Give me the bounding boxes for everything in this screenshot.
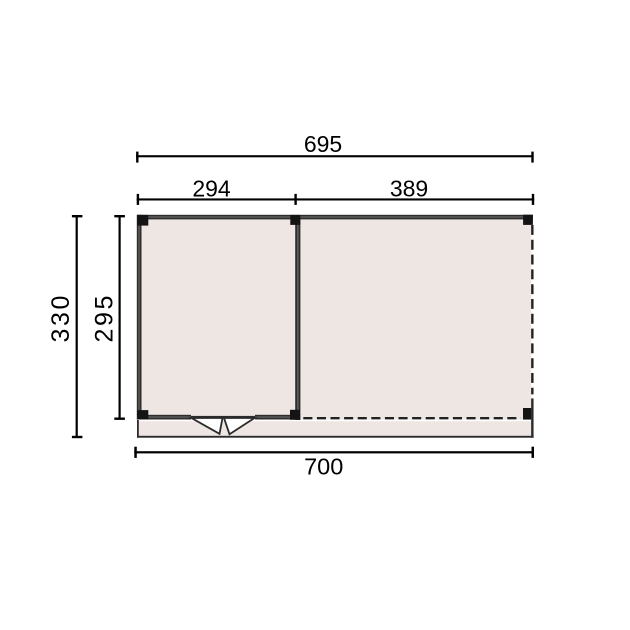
svg-text:330: 330 — [47, 293, 75, 343]
svg-text:294: 294 — [192, 176, 231, 202]
svg-text:695: 695 — [304, 131, 342, 157]
svg-text:700: 700 — [304, 453, 343, 479]
svg-text:389: 389 — [390, 175, 428, 201]
svg-text:295: 295 — [90, 293, 118, 343]
